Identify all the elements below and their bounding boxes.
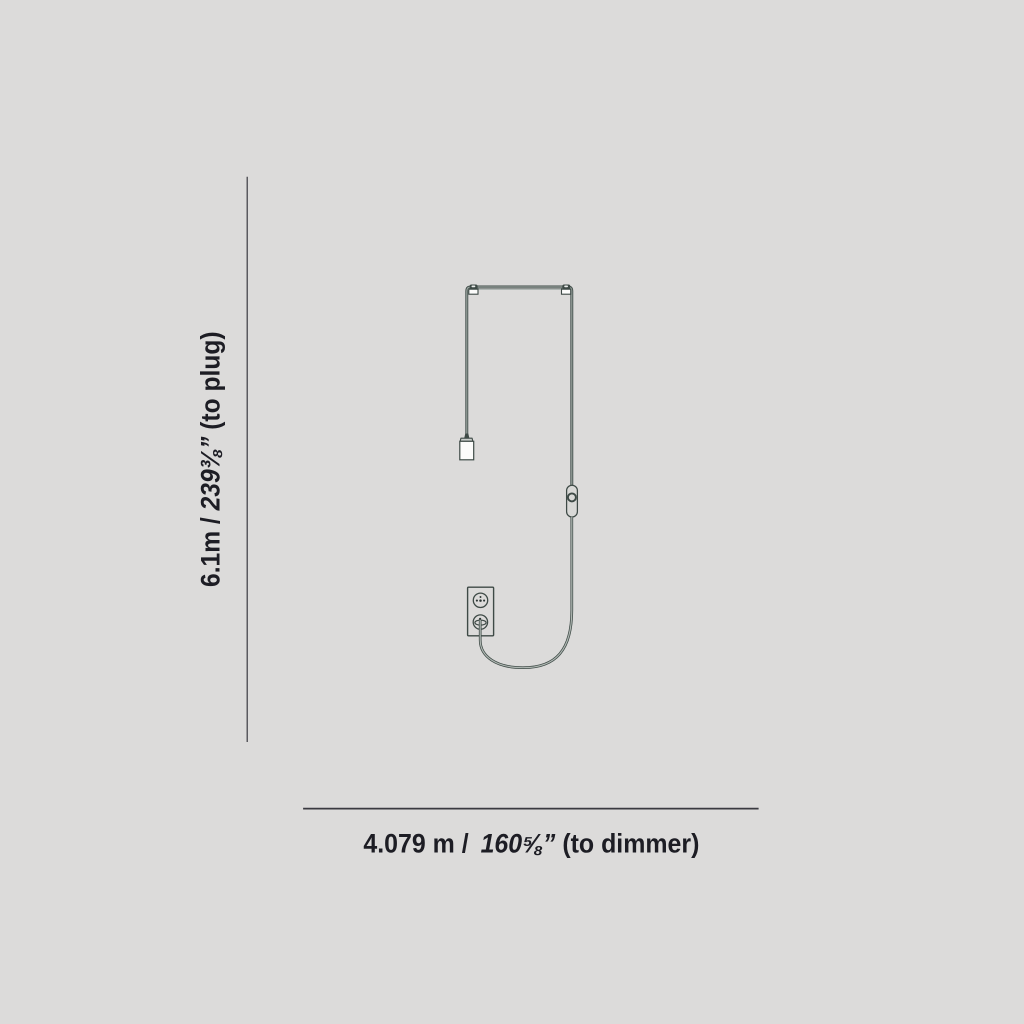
svg-text:4.079 m / 160⅝” (to dimmer): 4.079 m / 160⅝” (to dimmer)	[363, 829, 699, 859]
svg-text:6.1m / 239⅜” (to plug): 6.1m / 239⅜” (to plug)	[196, 331, 226, 587]
